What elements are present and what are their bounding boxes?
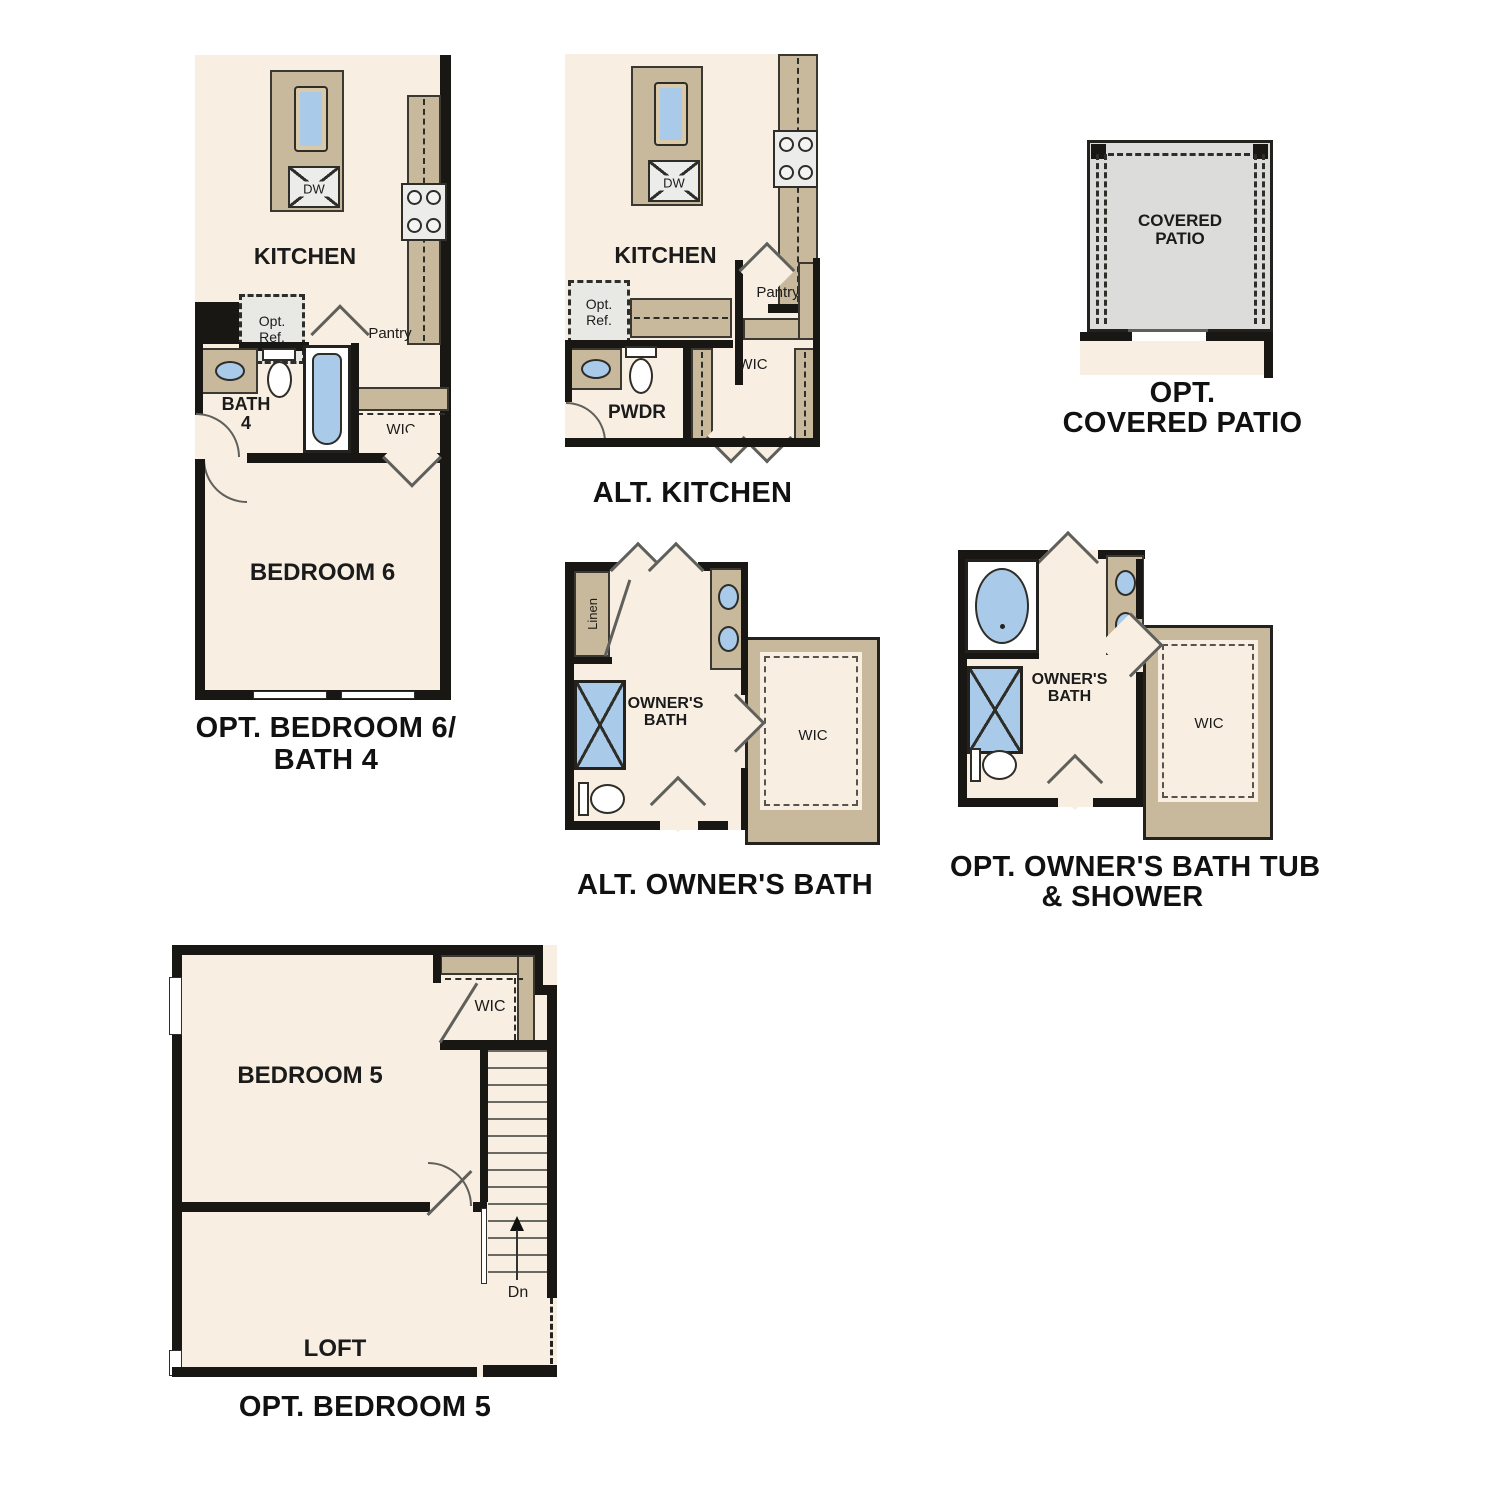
kitchen-island: DW [631, 66, 703, 206]
wall [547, 985, 557, 1298]
patio-roof-dash [1104, 154, 1107, 324]
wall [247, 453, 390, 463]
wall [958, 798, 1058, 807]
bathtub [303, 345, 351, 453]
wic-shelf-dash [445, 978, 523, 980]
window [341, 691, 415, 699]
loft-label: LOFT [270, 1336, 400, 1362]
burner [798, 137, 813, 152]
dishwasher-label: DW [300, 181, 328, 196]
bedroom5-label: BEDROOM 5 [225, 1062, 395, 1090]
dn-label: Dn [495, 1284, 541, 1302]
plan-opt-covered-patio: COVERED PATIO OPT. COVERED PATIO [1060, 130, 1305, 440]
stair-arrow-line [516, 1230, 518, 1280]
kitchen-label: KITCHEN [583, 242, 748, 268]
wall [565, 346, 572, 402]
linen-closet: Linen [574, 571, 610, 657]
burner [426, 218, 441, 233]
toilet-tank [970, 748, 981, 782]
wall [351, 343, 359, 457]
wall [480, 1050, 488, 1202]
plan-caption-line1: OPT. BEDROOM 6/ [195, 713, 457, 743]
bathtub-basin [312, 353, 342, 445]
wic-closet: WIC [1143, 625, 1273, 840]
wall [195, 302, 239, 344]
toilet-bowl [267, 361, 292, 398]
opt-ref-label: Opt. Ref. [250, 313, 294, 345]
shower [967, 666, 1023, 754]
bath-vanity [200, 348, 258, 394]
cooktop [401, 183, 447, 241]
wall [440, 55, 451, 700]
pwdr-vanity [568, 348, 622, 390]
bathtub-drain [1000, 624, 1005, 629]
wall [195, 459, 205, 700]
pantry-shelf [353, 387, 449, 411]
burner [407, 218, 422, 233]
wall [565, 562, 574, 830]
wall [565, 438, 818, 447]
cooktop [773, 130, 818, 188]
counter-dash-line [634, 317, 728, 319]
wic-shelf-dash [357, 413, 445, 415]
wall [172, 1367, 477, 1377]
kitchen-label: KITCHEN [220, 243, 390, 269]
bathtub [965, 559, 1039, 653]
patio-roof-dash [1108, 153, 1250, 156]
stair-direction-arrow [510, 1216, 524, 1231]
kitchen-island: DW [270, 70, 344, 212]
wall [698, 821, 728, 830]
island-sink [296, 88, 326, 150]
wall [965, 653, 1039, 659]
plan-alt-owners-bath: WIC Linen OWNER'S BATH ALT. OWNER'S BATH [560, 530, 890, 910]
wall [1136, 672, 1143, 807]
burner [798, 165, 813, 180]
house-wall [1264, 332, 1273, 378]
stair-handrail [481, 1208, 487, 1284]
wic-label: WIC [717, 356, 789, 374]
wic-shelf-dash [804, 352, 806, 436]
plan-opt-bedroom6-bath4: DW KITCHEN Opt. Ref. Pantry WIC [195, 55, 457, 785]
bathtub-basin [975, 568, 1029, 644]
house-wall [1080, 332, 1132, 341]
toilet-tank [262, 348, 296, 361]
house-wall [1206, 332, 1264, 341]
island-sink [656, 84, 686, 144]
patio-roof-dash [1254, 154, 1257, 324]
opt-ref-label: Opt. Ref. [578, 296, 620, 328]
dishwasher: DW [648, 160, 700, 202]
burner [426, 190, 441, 205]
interior-floor-strip [1080, 341, 1264, 375]
dishwasher: DW [288, 166, 340, 208]
patio-roof-dash [1262, 154, 1265, 324]
toilet-tank [625, 346, 657, 358]
toilet-bowl [629, 358, 653, 394]
plan-caption: ALT. OWNER'S BATH [560, 870, 890, 900]
optional-refrigerator: Opt. Ref. [568, 280, 630, 344]
wic-shelf-dash [701, 352, 703, 436]
dishwasher-label: DW [660, 175, 688, 190]
window [169, 977, 182, 1035]
plan-caption-line2: COVERED PATIO [1060, 408, 1305, 438]
wall [813, 258, 820, 447]
plan-caption-line2: BATH 4 [195, 745, 457, 775]
plan-caption-line2: & SHOWER [950, 882, 1295, 912]
burner [407, 190, 422, 205]
wall [958, 550, 1048, 559]
wall [683, 346, 691, 446]
burner [779, 165, 794, 180]
owners-bath-label: OWNER'S BATH [1022, 668, 1117, 708]
wic-closet: WIC [745, 637, 880, 845]
wic-label: WIC [1176, 716, 1242, 732]
wic-label: WIC [363, 421, 439, 439]
plan-opt-bedroom5: WIC BEDROOM 5 Dn LOFT OPT. BEDROOM 5 [165, 940, 565, 1430]
covered-patio-label: COVERED PATIO [1122, 208, 1238, 252]
wall [440, 1040, 547, 1050]
toilet-tank [578, 782, 589, 816]
wall [172, 1202, 430, 1212]
pwdr-sink [581, 359, 611, 379]
vanity-sink [718, 626, 739, 652]
pantry-label: Pantry [345, 325, 435, 343]
vanity-sink [718, 584, 739, 610]
bath-sink [215, 361, 245, 381]
opening-dash [550, 1298, 553, 1364]
window [253, 691, 327, 699]
wall [483, 1365, 557, 1377]
toilet-bowl [590, 784, 625, 814]
wic-label: WIC [778, 728, 848, 744]
patio-roof-dash [1096, 154, 1099, 324]
pwdr-label: PWDR [587, 402, 687, 424]
vanity-sink [1115, 570, 1136, 596]
wall [195, 343, 203, 415]
wic-label: WIC [460, 998, 520, 1016]
bedroom6-label: BEDROOM 6 [225, 560, 420, 586]
burner [779, 137, 794, 152]
owners-bath-label: OWNER'S BATH [618, 692, 713, 732]
wall [565, 821, 660, 830]
wall [433, 955, 441, 983]
plan-caption-line1: OPT. [1060, 378, 1305, 408]
plan-caption: ALT. KITCHEN [565, 478, 820, 508]
wall [741, 562, 748, 695]
floorplan-options-sheet: DW KITCHEN Opt. Ref. Pantry WIC [0, 0, 1500, 1500]
linen-label: Linen [585, 598, 600, 630]
plan-alt-kitchen: DW KITCHEN Pantry Opt. Ref. PWDR [565, 50, 820, 520]
toilet-bowl [982, 750, 1017, 780]
plan-caption-line1: OPT. OWNER'S BATH TUB [950, 852, 1295, 882]
wall [1136, 559, 1143, 619]
plan-caption: OPT. BEDROOM 5 [165, 1392, 565, 1422]
wall [574, 657, 612, 664]
wall [172, 945, 543, 955]
plan-opt-owners-bath-tub-shower: WIC OWNER'S BATH OPT. OWNER'S BATH TUB &… [950, 520, 1295, 930]
wall [741, 768, 748, 830]
sliding-door [1128, 329, 1208, 332]
